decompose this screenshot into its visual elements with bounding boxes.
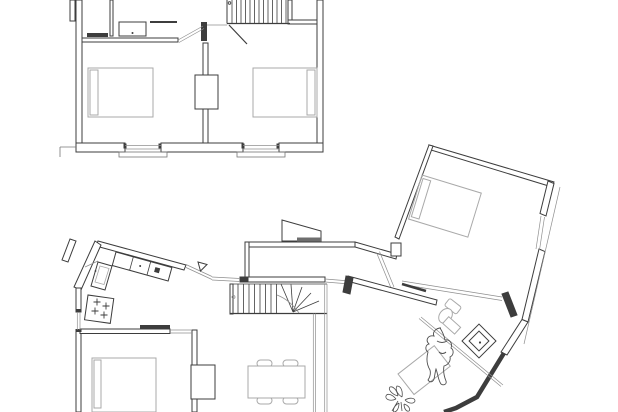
dining-set-shape-4 bbox=[248, 366, 305, 398]
wing-walls-shape-6 bbox=[444, 353, 504, 412]
lower-left-walls-shape-7 bbox=[191, 365, 215, 399]
figure-scribble-shape-0 bbox=[426, 328, 453, 385]
wing-walls-shape-3 bbox=[522, 249, 545, 322]
hall-walls-shape-4 bbox=[245, 242, 249, 278]
wing-bed-shape-0 bbox=[409, 175, 482, 237]
hall-walls-shape-7 bbox=[391, 243, 401, 256]
upper-exterior-walls-shape-4 bbox=[161, 143, 243, 152]
wing-thin-lines-shape-7 bbox=[421, 317, 503, 385]
upper-interior-walls-shape-6 bbox=[288, 20, 317, 24]
lower-left-walls-shape-5 bbox=[80, 329, 170, 334]
upper-wall-dark-pieces-shape-4 bbox=[242, 144, 245, 149]
upper-wall-dark-pieces-shape-2 bbox=[124, 144, 127, 149]
upper-exterior-walls-shape-5 bbox=[279, 143, 323, 152]
kitchen-sink-shape-2 bbox=[95, 270, 97, 272]
living-boundary bbox=[313, 284, 327, 412]
lower-left-dark-shape-1 bbox=[76, 309, 82, 312]
upper-interior-walls-shape-4 bbox=[195, 75, 218, 109]
wing-walls-shape-5 bbox=[502, 292, 517, 317]
corridor-band-shape-1 bbox=[343, 276, 353, 294]
upper-interior-walls-shape-3 bbox=[203, 109, 208, 143]
upper-interior-walls-shape-2 bbox=[203, 43, 208, 76]
wing-walls-shape-2 bbox=[540, 181, 554, 216]
upper-wall-dark-pieces-shape-0 bbox=[201, 22, 207, 41]
upper-interior-walls-shape-1 bbox=[110, 0, 113, 36]
corridor-band bbox=[343, 276, 437, 305]
upper-bath-fixtures-shape-1 bbox=[132, 32, 134, 34]
upper-beds-shape-1 bbox=[90, 70, 98, 115]
kitchen-sink bbox=[91, 262, 112, 290]
hall-openings-shape-6 bbox=[198, 262, 207, 271]
upper-beds-shape-3 bbox=[307, 70, 315, 115]
kitchen-hob-shape-0 bbox=[85, 295, 114, 323]
lower-stair-shape-0 bbox=[230, 284, 233, 314]
bath-fixtures bbox=[436, 298, 496, 358]
bath-fixtures-shape-5 bbox=[479, 341, 481, 343]
hall-walls-shape-5 bbox=[245, 277, 325, 282]
upper-windows-shape-6 bbox=[60, 147, 76, 157]
figure-scribble bbox=[426, 328, 453, 385]
lower-left-walls-shape-3 bbox=[76, 288, 81, 312]
wing-walls-shape-0 bbox=[429, 145, 554, 187]
lower-bed-shape-1 bbox=[94, 360, 101, 408]
hall-walls-shape-2 bbox=[247, 242, 355, 247]
bath-rug bbox=[398, 346, 450, 395]
lower-bed-shape-0 bbox=[92, 358, 156, 412]
upper-exterior-walls-shape-0 bbox=[76, 0, 82, 152]
upper-exterior-walls-shape-3 bbox=[76, 143, 125, 152]
upper-exterior-walls-shape-2 bbox=[317, 0, 323, 152]
lower-left-walls-shape-8 bbox=[192, 399, 197, 412]
lower-left-walls-shape-4 bbox=[76, 330, 81, 412]
lower-left-dark-shape-2 bbox=[76, 329, 82, 332]
wing-bed bbox=[409, 175, 482, 237]
lower-stair-shape-13 bbox=[293, 287, 302, 312]
lower-stair bbox=[230, 284, 327, 314]
upper-door-swing bbox=[207, 25, 247, 44]
hall-openings-shape-5 bbox=[212, 280, 240, 282]
upper-windows-shape-5 bbox=[237, 152, 285, 157]
upper-thin-partition-shape-0 bbox=[178, 26, 203, 40]
lower-left-dark-shape-0 bbox=[140, 325, 170, 329]
dining-set bbox=[248, 360, 305, 404]
upper-thin-partition-shape-1 bbox=[179, 29, 204, 43]
floor-plan-document bbox=[0, 0, 618, 412]
upper-exterior-walls-shape-1 bbox=[70, 0, 75, 21]
wing-walls-shape-4 bbox=[501, 320, 528, 356]
upper-bath-fixtures bbox=[119, 22, 177, 36]
lower-bed bbox=[92, 358, 156, 412]
upper-wall-dark-pieces-shape-1 bbox=[87, 33, 108, 37]
hall-openings-shape-4 bbox=[212, 277, 240, 279]
lower-left-walls-shape-6 bbox=[192, 330, 197, 366]
upper-door-swing-shape-0 bbox=[229, 25, 247, 44]
upper-stair bbox=[227, 0, 290, 24]
upper-wall-dark-pieces-shape-3 bbox=[159, 144, 162, 149]
upper-windows-shape-4 bbox=[119, 152, 167, 157]
upper-wall-dark-pieces-shape-5 bbox=[277, 144, 280, 149]
hall-walls-shape-1 bbox=[297, 238, 321, 242]
hall-walls bbox=[240, 220, 401, 282]
upper-interior-walls-shape-0 bbox=[82, 38, 178, 42]
hall-walls-shape-6 bbox=[240, 277, 248, 282]
upper-stair-shape-15 bbox=[228, 2, 231, 5]
kitchen-hob bbox=[85, 295, 114, 323]
lower-left-walls-shape-2 bbox=[62, 239, 76, 262]
wing-thin-lines-shape-3 bbox=[377, 253, 392, 289]
hall-openings-shape-3 bbox=[186, 268, 212, 280]
upper-thin-partition bbox=[178, 26, 204, 43]
bath-rug-shape-0 bbox=[398, 346, 450, 395]
floor-plan-svg bbox=[0, 0, 618, 412]
